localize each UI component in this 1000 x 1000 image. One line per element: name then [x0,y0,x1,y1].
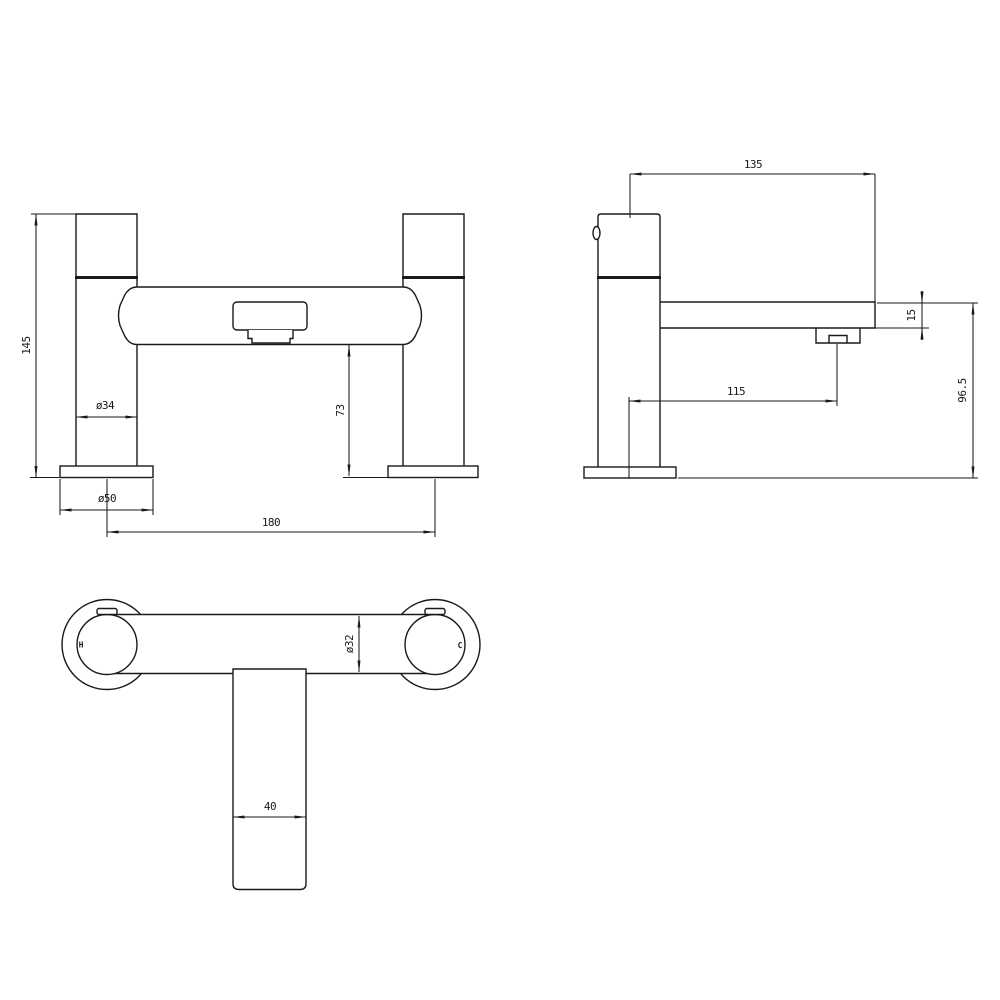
front-aerator [248,330,293,343]
dim-label-40: 40 [264,800,276,813]
dim-label-73: 73 [334,404,347,416]
front-view: 145 ø34 ø50 73 180 [20,214,478,537]
side-aerator-outlet [829,336,847,344]
dim-label-115: 115 [727,385,745,398]
plan-cold-index-tab [425,609,445,615]
dim-label-d34: ø34 [96,399,115,412]
plan-body-fill [107,615,435,674]
dim-label-96-5: 96.5 [956,378,969,403]
dim-spout-thickness: 15 [861,291,929,340]
front-spout [233,302,307,330]
technical-drawing-canvas: 145 ø34 ø50 73 180 [0,0,1000,1000]
plan-cold-handle-circle [405,615,465,675]
dim-label-180: 180 [262,516,280,529]
side-spout [660,302,875,328]
plan-hot-handle-circle [77,615,137,675]
dim-label-135: 135 [744,158,762,171]
plan-spout [233,669,306,890]
dim-label-145: 145 [20,336,33,354]
plan-view: H C ø32 40 [62,600,480,890]
dim-tap-centres: 180 [107,479,435,537]
front-right-base-flange [388,466,478,478]
dim-label-d32: ø32 [343,635,356,653]
dim-depth-overall: 135 [630,158,875,302]
hot-indicator-label: H [79,641,84,650]
front-left-base-flange [60,466,153,478]
side-handle [598,214,660,277]
drawing-sheet: 145 ø34 ø50 73 180 [0,0,1000,1000]
side-base-flange [584,467,676,478]
side-handle-button [593,227,600,240]
dim-overall-height: 145 [20,214,76,478]
plan-hot-index-tab [97,609,117,615]
dim-label-15: 15 [905,309,918,321]
dim-spout-clearance: 73 [334,345,389,478]
cold-indicator-label: C [458,641,463,650]
dim-height-to-spout: 96.5 [678,303,978,478]
side-view: 135 15 115 96.5 [584,158,978,478]
dim-pillar-diameter: ø34 [76,399,137,417]
